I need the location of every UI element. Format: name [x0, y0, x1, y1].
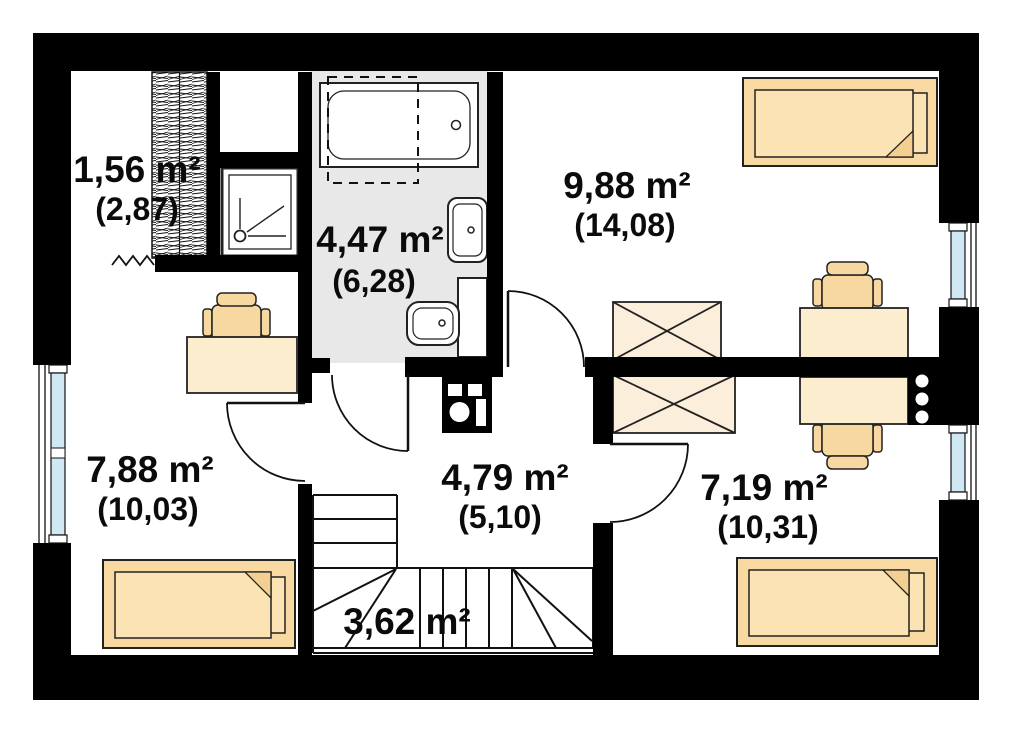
window-glass	[951, 231, 965, 299]
floor-plan-canvas: 1,56 m² (2,87) 4,47 m² (6,28) 9,88 m² (1…	[0, 0, 1012, 733]
wall-bathroom-door-stub	[312, 358, 330, 373]
vent-stack	[916, 375, 929, 424]
wall-left-upper	[33, 33, 71, 365]
toilet-cistern	[458, 278, 487, 357]
window-cap	[49, 365, 67, 373]
bed	[743, 78, 937, 166]
chair-headrest	[217, 293, 256, 306]
room-label-bedroom-lower-right-area: 7,19 m²	[700, 467, 828, 508]
bed	[103, 560, 295, 648]
window-cap	[949, 299, 967, 307]
washbasin	[448, 198, 487, 262]
chimney-duct-square	[468, 384, 482, 396]
wall-hall-right-upper	[593, 357, 613, 444]
chimney-duct-slot	[476, 399, 486, 426]
wall-bottom	[33, 655, 979, 700]
toilet-flush-dot	[439, 320, 445, 326]
bathtub-drain	[452, 121, 461, 130]
room-label-bathroom-area: 4,47 m²	[316, 219, 444, 260]
bed-sheet-strip	[908, 573, 924, 631]
room-label-staircase-area: 3,62 m²	[343, 601, 471, 642]
vent-hole	[916, 375, 929, 388]
bed-duvet	[749, 570, 909, 636]
vent-hole	[916, 411, 929, 424]
bathtub	[320, 83, 478, 167]
room-label-closet-gross: (2,87)	[95, 191, 179, 227]
wall-right-upper	[939, 33, 979, 223]
window-glass	[951, 433, 965, 492]
wall-room-divider	[585, 357, 939, 377]
room-label-bedroom-lower-right-gross: (10,31)	[717, 509, 818, 545]
chair-seat	[822, 275, 873, 311]
window-transom	[51, 448, 65, 458]
window-cap	[49, 535, 67, 543]
shower-tray	[222, 168, 298, 256]
window-cap	[949, 223, 967, 231]
chair-headrest	[827, 262, 868, 275]
bed	[737, 558, 937, 646]
bed-duvet	[115, 572, 271, 638]
wall-below-shower	[155, 255, 312, 272]
desk	[187, 337, 297, 393]
wall-niche-bottom	[220, 152, 310, 168]
wall-right-lower	[939, 500, 979, 700]
chair-armrest	[873, 279, 882, 306]
chair-armrest	[813, 279, 822, 306]
room-label-bathroom-gross: (6,28)	[332, 263, 416, 299]
room-label-bedroom-upper-right-gross: (14,08)	[574, 207, 675, 243]
desk	[800, 377, 908, 424]
room-label-hall-area: 4,79 m²	[441, 457, 569, 498]
window-cap	[949, 425, 967, 433]
wall-wardrobe-partition	[207, 72, 220, 258]
wall-hall-right-lower	[593, 523, 613, 655]
room-label-bedroom-upper-right-area: 9,88 m²	[563, 165, 691, 206]
desk	[800, 308, 908, 358]
chair-seat	[822, 420, 873, 456]
window-cap	[949, 492, 967, 500]
wall-top	[33, 33, 979, 71]
bed-duvet	[755, 90, 913, 157]
room-label-bedroom-left-gross: (10,03)	[97, 491, 198, 527]
wall-bathroom-right	[487, 72, 503, 377]
room-label-closet-area: 1,56 m²	[73, 149, 201, 190]
room-label-hall-gross: (5,10)	[458, 499, 542, 535]
chair-seat	[212, 305, 261, 341]
floor-plan-drawing: 1,56 m² (2,87) 4,47 m² (6,28) 9,88 m² (1…	[0, 0, 1012, 733]
wall-right-middle	[939, 307, 979, 425]
crossed-wardrobe	[613, 302, 721, 360]
chimney-duct-square	[448, 384, 462, 396]
wall-hall-left-upper	[298, 72, 312, 403]
shower-drain	[235, 231, 246, 242]
vent-hole	[916, 393, 929, 406]
chimney-duct-round	[450, 402, 470, 422]
wall-hall-left-lower	[298, 484, 312, 655]
washbasin-tap	[468, 227, 474, 233]
chair-armrest	[261, 309, 270, 336]
chair-armrest	[813, 425, 822, 452]
crossed-wardrobe	[613, 375, 735, 433]
chair-headrest	[827, 456, 868, 469]
room-label-bedroom-left-area: 7,88 m²	[86, 449, 214, 490]
chair-armrest	[203, 309, 212, 336]
chimney-flue	[442, 377, 492, 433]
shower	[222, 168, 298, 256]
chair-armrest	[873, 425, 882, 452]
